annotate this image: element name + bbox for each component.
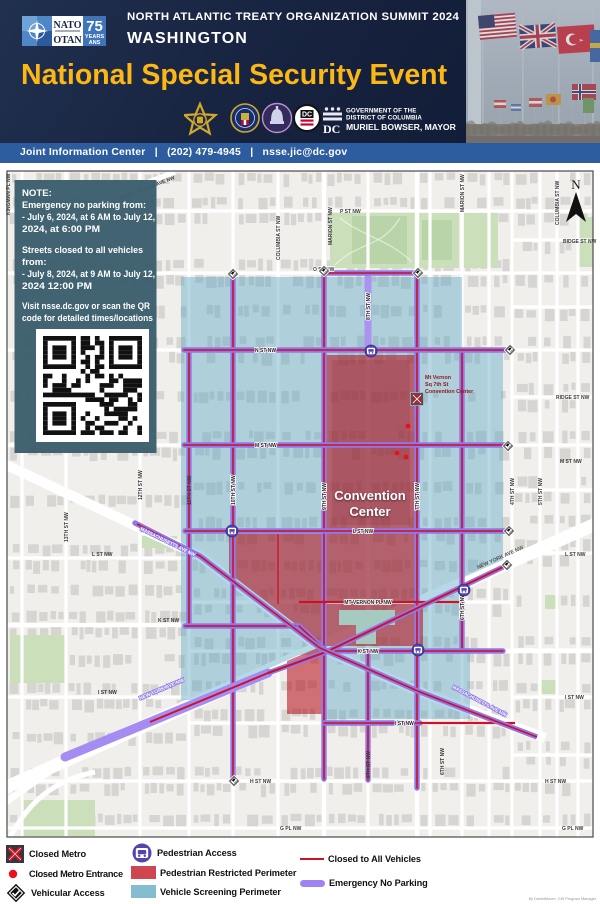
svg-text:from:: from: [22, 257, 47, 268]
svg-text:MARION ST NW: MARION ST NW [328, 207, 334, 245]
svg-text:M ST NW: M ST NW [560, 459, 582, 465]
svg-text:Center: Center [349, 504, 390, 519]
svg-text:Convention: Convention [334, 488, 406, 503]
svg-text:G PL NW: G PL NW [280, 826, 302, 832]
svg-text:K ST NW: K ST NW [158, 618, 179, 624]
svg-text:I ST NW: I ST NW [395, 721, 414, 727]
svg-text:2024, at 6:00 PM: 2024, at 6:00 PM [22, 224, 100, 235]
svg-text:13TH ST NW: 13TH ST NW [64, 512, 70, 542]
svg-text:6TH ST NW: 6TH ST NW [460, 593, 466, 620]
svg-text:Sq 7th St: Sq 7th St [425, 382, 449, 388]
svg-text:Emergency no parking from:: Emergency no parking from: [22, 200, 146, 211]
svg-text:N: N [571, 177, 581, 192]
svg-text:10TH ST NW: 10TH ST NW [231, 475, 237, 505]
svg-text:- July 8, 2024, at 9 AM to Jul: - July 8, 2024, at 9 AM to July 12, [22, 269, 155, 280]
svg-text:12TH ST NW: 12TH ST NW [138, 470, 144, 500]
svg-text:L ST NW: L ST NW [353, 529, 374, 535]
svg-text:Streets closed to all vehicles: Streets closed to all vehicles [22, 245, 143, 256]
svg-text:4TH ST NW: 4TH ST NW [510, 478, 516, 505]
svg-text:H ST NW: H ST NW [545, 779, 566, 785]
svg-text:G PL NW: G PL NW [562, 826, 584, 832]
svg-text:2024 12:00 PM: 2024 12:00 PM [22, 281, 92, 292]
svg-text:8TH ST NW: 8TH ST NW [366, 293, 372, 320]
svg-text:I ST NW: I ST NW [98, 690, 117, 696]
svg-text:Visit nsse.dc.gov or scan the: Visit nsse.dc.gov or scan the QR [22, 301, 150, 312]
svg-text:COLUMBIA ST NW: COLUMBIA ST NW [276, 215, 282, 260]
svg-text:code for detailed times/locati: code for detailed times/locations [22, 313, 153, 324]
svg-text:MARION ST NW: MARION ST NW [460, 174, 466, 212]
svg-text:H ST NW: H ST NW [250, 779, 271, 785]
svg-text:9TH ST NW: 9TH ST NW [322, 483, 328, 510]
svg-text:5TH ST NW: 5TH ST NW [538, 478, 544, 505]
svg-text:COLUMBIA ST NW: COLUMBIA ST NW [555, 180, 561, 225]
svg-text:Mt Vernon: Mt Vernon [425, 375, 451, 381]
svg-text:MT VERNON PL NW: MT VERNON PL NW [344, 600, 392, 606]
svg-text:6TH ST NW: 6TH ST NW [440, 748, 446, 775]
svg-text:N ST NW: N ST NW [255, 348, 276, 354]
svg-text:I ST NW: I ST NW [565, 695, 584, 701]
svg-text:7TH ST NW: 7TH ST NW [415, 483, 421, 510]
svg-text:L ST NW: L ST NW [565, 552, 586, 558]
svg-text:8TH ST NW: 8TH ST NW [366, 751, 372, 778]
svg-text:P ST NW: P ST NW [340, 209, 361, 215]
svg-text:NOTE:: NOTE: [22, 188, 52, 199]
svg-text:L ST NW: L ST NW [92, 552, 113, 558]
svg-text:11TH ST NW: 11TH ST NW [187, 475, 193, 505]
svg-text:- July 6, 2024, at 6 AM to Jul: - July 6, 2024, at 6 AM to July 12, [22, 212, 155, 223]
svg-text:K ST NW: K ST NW [357, 649, 378, 655]
svg-text:BIDGE ST NW: BIDGE ST NW [563, 239, 597, 245]
svg-text:M ST NW: M ST NW [255, 443, 277, 449]
svg-text:Convention Center: Convention Center [425, 389, 474, 395]
svg-text:RIDGE ST NW: RIDGE ST NW [556, 395, 590, 401]
